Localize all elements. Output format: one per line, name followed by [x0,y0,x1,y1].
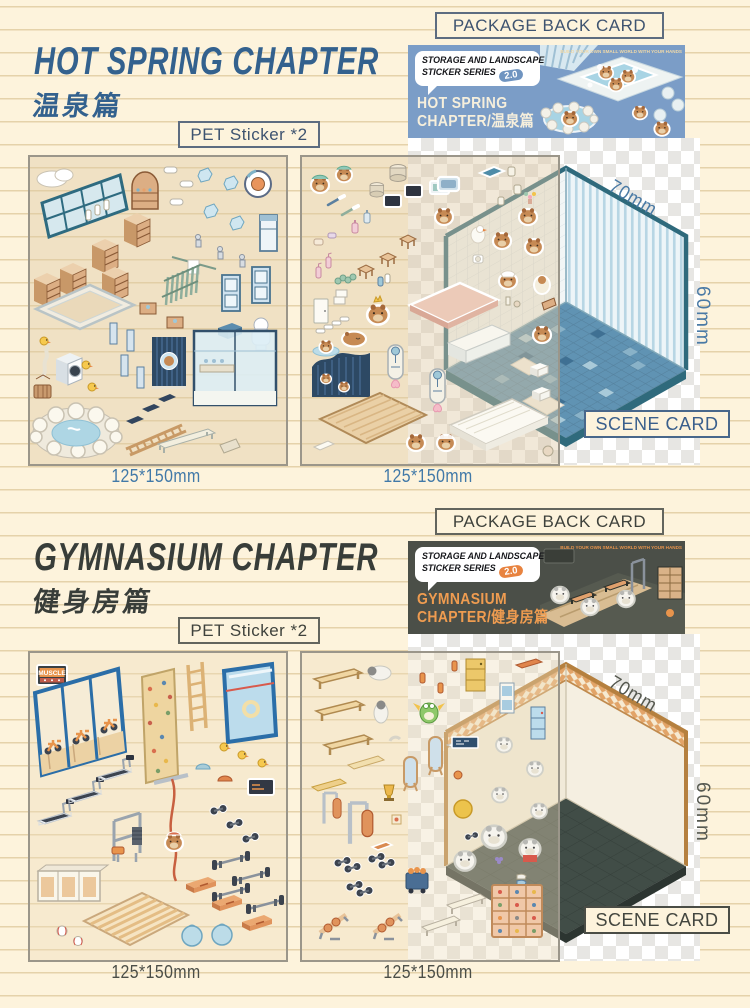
situp-bench-icon [320,915,348,939]
series-line1: STORAGE AND LANDSCAPE [422,55,532,67]
punching-bag-icon [324,793,341,824]
capybara-icon [533,326,551,343]
package-back-card-label: PACKAGE BACK CARD [435,12,664,39]
duck-icon [220,743,231,751]
corner-shelf-icon [220,439,240,453]
dumbbell-icon [226,819,243,830]
stool-icon [358,265,374,279]
white-capy-icon [617,591,635,608]
barbell-icon [246,895,284,914]
gym-package-back-card: BUILD YOUR OWN SMALL WORLD WITH YOUR HAN… [408,541,685,634]
basketball-icon [666,609,674,617]
mattress-icon [450,399,548,451]
wall-mirror [544,549,574,563]
standing-mirror-icon [429,737,442,775]
sink-cabinet-icons [140,303,183,328]
hot-spring-sticker-sheet-1 [28,155,288,466]
capybara-icon [609,78,623,91]
package-chapter-title: HOT SPRING CHAPTER/温泉篇 [417,95,534,131]
section-title: HOT SPRING CHAPTER [34,40,379,84]
chapter-line2: CHAPTER/健身房篇 [417,609,548,627]
drum-icon [370,183,384,197]
toothbrush-icon [328,196,358,215]
sheet1-size-label: 125*150mm [72,962,241,983]
capybara-icon [407,434,425,451]
series-line1: STORAGE AND LANDSCAPE [422,551,532,563]
washing-machine-icon [56,353,82,385]
lotion-bottle-icons [316,253,332,278]
grapes-icon [495,857,503,864]
glass-wall-icon [194,331,276,405]
blue-locker-icon [252,267,270,303]
shower-figure-icons [196,235,246,268]
trophy-icon [384,785,394,801]
white-box-icon [530,363,548,377]
white-capy-icon [496,738,512,753]
scene-card-label: SCENE CARD [584,906,730,934]
shower-stand-icon [388,345,403,388]
yellow-plank-icon [312,779,346,791]
orange-mat-icon [372,842,392,850]
small-mat-icon [314,441,334,450]
candle-bottle-icons [506,297,520,307]
door-icon [314,299,328,323]
capy-green-hat-icon [336,166,352,182]
white-arc-icon [390,737,400,741]
capy-sleeping-icon [342,332,366,347]
duck-icon [238,751,249,759]
situp-bench-icon [374,915,402,939]
gym-package-illustration: BUILD YOUR OWN SMALL WORLD WITH YOUR HAN… [540,541,685,634]
capsule-stickers [164,167,193,205]
stool-icon [380,253,396,267]
svg-text:MUSCLE: MUSCLE [38,670,66,677]
pot-icon [543,446,553,456]
gym-tv-icon [248,779,274,795]
weight-machine-icon [112,813,142,862]
duck-icon [40,337,51,345]
toiletry-bottle-icons [352,210,370,233]
blue-cabinet-icon [531,707,545,739]
locker-shelf [658,567,682,599]
tv-icon [384,185,422,207]
capybara-icon [493,232,511,249]
wall-ladder-icon [188,662,207,731]
barbell-icon [212,851,250,870]
white-capy-icon [531,804,547,819]
climbing-wall-icon [142,669,178,783]
wall-sign-icon [452,737,478,748]
gym-ball-icon [182,925,202,946]
round-machine-icon [245,171,271,197]
wall-mirror-icon [438,177,459,191]
stool-icon [400,235,416,249]
wall-panel-icons [110,323,144,388]
white-capy-icon [492,788,508,803]
climbing-rope-capy-icon [154,775,188,881]
tagline-text: BUILD YOUR OWN SMALL WORLD WITH YOUR HAN… [560,49,682,54]
wood-shelf-icon [124,213,150,247]
gymnasium-section: 70mm 60mm MUSCLE [0,496,750,992]
dumbbell-icon [242,833,259,844]
capybara-icon [633,106,647,119]
badge-icon [454,771,462,779]
standing-mirror-icon [404,757,417,791]
section-title: GYMNASIUM CHAPTER [34,536,378,580]
pool-window-icon [224,664,276,742]
white-capy-icon [455,851,476,871]
steam-icon [42,347,48,377]
wall-bar-bench-icon [314,669,362,689]
muscle-sign-icon: MUSCLE [37,665,67,685]
gym-sticker-sheet-2 [300,651,560,962]
wavy-curtain-icon [312,353,370,397]
gray-capy-lying-icon [368,666,392,680]
package-chapter-title: GYMNASIUM CHAPTER/健身房篇 [417,591,548,627]
dumbbell-icon [210,805,227,816]
cloud-icon [37,169,73,187]
white-capy-icon [551,587,569,604]
toilet-paper-icon [473,255,483,263]
duck-icon [258,759,269,767]
scene-height-dimension: 60mm [691,782,713,843]
changing-stalls-icon [38,865,108,901]
teal-tile-icon [480,167,504,177]
stepping-stones-icon [126,394,176,424]
barbell-icon [232,867,270,886]
hot-spring-package-back-card: BUILD YOUR OWN SMALL WORLD WITH YOUR HAN… [408,45,685,138]
section-title-chinese: 健身房篇 [31,580,156,619]
white-blue-cabinet-icon [500,683,514,713]
soap-icons [314,233,336,245]
capybara-icon [435,208,453,225]
wall-bar-bench-icon [316,701,364,721]
corner-shelf-icon [542,298,556,310]
towel-rail-icon [172,257,216,274]
sheet2-size-label: 125*150mm [344,466,513,487]
gym-sticker-sheet-1: MUSCLE [28,651,288,962]
yellow-locker-icon [466,659,485,691]
section-title-chinese: 温泉篇 [31,84,126,123]
blue-locker-icon [222,275,240,311]
capybara-icon [654,122,669,136]
bottle-pair-icon [378,274,390,286]
ice-sculpture-icons [198,168,244,230]
drum-icon [390,165,406,182]
sneakers-icon [517,874,526,885]
wolf-capy-icon [520,839,541,862]
box-stack-icon [334,290,347,304]
scene-height-dimension: 60mm [691,286,713,347]
dumbbell-icon [465,832,479,840]
capybara-icon [519,208,537,225]
capy-swimming-icon [313,340,339,356]
hot-spring-section: 70mm 60mm [0,0,750,496]
capy-head-towel-icon [499,271,517,289]
arch-cabinet-icon [132,172,158,209]
chapter-line1: GYMNASIUM [417,591,548,609]
noren-curtain-icon [152,337,186,389]
balance-dome-icons [196,764,232,781]
baseball-icon [57,926,67,936]
frog-sticker-icon [413,703,445,723]
shoe-rack-icon [492,885,542,937]
sheet2-size-label: 125*150mm [344,962,513,983]
capy-crown-icon [367,296,389,325]
capybara-icon [525,238,543,255]
wall-bar-bench-icon [324,735,372,755]
white-shelf-icon [448,325,510,363]
yoga-ball-icon [454,800,472,818]
exercise-mat-icon [242,915,272,931]
punching-bag-icon [350,803,373,844]
white-capy-icon [581,599,599,616]
orange-plank-icon [516,659,542,668]
caterpillar-icon [335,274,356,284]
tagline-text: BUILD YOUR OWN SMALL WORLD WITH YOUR HAN… [560,545,682,550]
goose-icon [471,226,487,244]
white-locker-icon [260,215,277,251]
bench-icon [447,894,486,914]
duck-icon [82,361,93,369]
chapter-line2: CHAPTER/温泉篇 [417,113,534,131]
vending-cart-icon [406,867,428,894]
sheet1-size-label: 125*150mm [72,466,241,487]
hot-spring-sticker-sheet-2 [300,155,560,466]
bench-icon [422,916,460,936]
capy-green-hat-icon [311,175,329,193]
shower-stand-icon [430,369,445,412]
capy-towel-icon [437,434,455,451]
capy-bathrobe-icon [534,276,550,294]
tan-plank-icon [348,756,384,769]
baseball-icon [74,937,83,946]
pet-sticker-label: PET Sticker *2 [178,617,320,644]
scene-card-label: SCENE CARD [584,410,730,438]
white-capy-icon [482,826,506,849]
water-bottle-icons [420,661,457,693]
package-back-card-label: PACKAGE BACK CARD [435,508,664,535]
chapter-line1: HOT SPRING [417,95,534,113]
gray-capy-standing-icon [374,701,388,724]
duck-icon [88,383,99,391]
hot-spring-package-illustration: BUILD YOUR OWN SMALL WORLD WITH YOUR HAN… [540,45,685,138]
wall-art-icon [392,815,401,824]
exercise-mat-icon [186,877,216,893]
gym-ball-icon [212,924,232,945]
product-infographic-page: 70mm 60mm [0,0,750,1008]
pet-sticker-label: PET Sticker *2 [178,121,320,148]
white-box-icon [532,387,550,401]
hot-spring-pool-icon [30,403,122,458]
flower-vase-icon [524,192,536,204]
white-capy-icon [527,762,543,777]
pink-table-icon [410,283,498,329]
